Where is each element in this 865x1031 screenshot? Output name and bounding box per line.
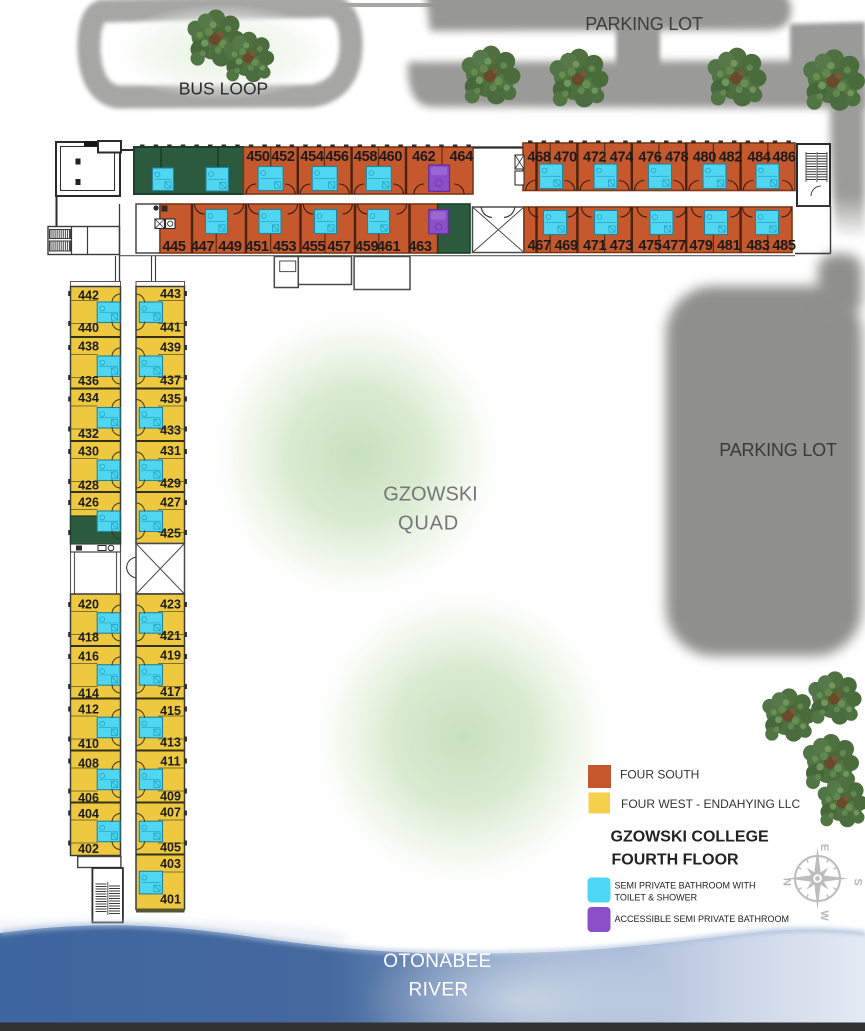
svg-text:RIVER: RIVER: [408, 980, 468, 1001]
svg-text:427: 427: [160, 496, 181, 510]
svg-text:476: 476: [638, 150, 662, 166]
svg-text:479: 479: [689, 238, 713, 254]
svg-text:463: 463: [408, 239, 432, 255]
svg-text:472: 472: [583, 150, 607, 166]
svg-text:456: 456: [325, 149, 349, 165]
svg-text:SEMI PRIVATE BATHROOM WITH: SEMI PRIVATE BATHROOM WITH: [615, 881, 756, 891]
svg-text:421: 421: [160, 629, 181, 643]
svg-text:FOURTH FLOOR: FOURTH FLOOR: [612, 852, 740, 869]
svg-text:445: 445: [162, 239, 186, 255]
svg-text:449: 449: [218, 239, 242, 255]
svg-text:474: 474: [610, 150, 634, 166]
svg-text:406: 406: [78, 791, 99, 805]
svg-text:471: 471: [583, 238, 607, 254]
svg-text:434: 434: [78, 391, 99, 405]
svg-text:431: 431: [160, 444, 181, 458]
svg-text:484: 484: [747, 150, 771, 166]
svg-text:482: 482: [719, 150, 743, 166]
svg-text:451: 451: [245, 239, 269, 255]
svg-text:411: 411: [160, 755, 180, 769]
svg-text:TOILET & SHOWER: TOILET & SHOWER: [615, 893, 698, 903]
svg-text:413: 413: [160, 736, 181, 750]
svg-text:459: 459: [355, 239, 379, 255]
svg-text:415: 415: [160, 704, 181, 718]
svg-text:483: 483: [746, 238, 770, 254]
svg-text:473: 473: [610, 238, 634, 254]
svg-text:458: 458: [354, 149, 378, 165]
svg-text:PARKING LOT: PARKING LOT: [585, 14, 703, 34]
svg-text:462: 462: [412, 149, 436, 165]
svg-text:429: 429: [160, 477, 181, 491]
svg-text:N: N: [781, 878, 793, 886]
svg-text:433: 433: [160, 424, 181, 438]
svg-text:417: 417: [160, 685, 181, 699]
svg-text:468: 468: [527, 150, 551, 166]
svg-text:426: 426: [78, 496, 99, 510]
svg-text:486: 486: [772, 150, 796, 166]
svg-text:437: 437: [160, 374, 181, 388]
svg-text:441: 441: [160, 321, 181, 335]
svg-text:405: 405: [160, 841, 181, 855]
svg-text:BUS LOOP: BUS LOOP: [179, 79, 268, 99]
svg-text:S: S: [852, 878, 864, 885]
svg-text:469: 469: [554, 238, 578, 254]
svg-text:407: 407: [160, 806, 181, 820]
svg-text:440: 440: [78, 321, 99, 335]
svg-text:404: 404: [78, 807, 99, 821]
svg-text:460: 460: [379, 149, 403, 165]
svg-text:425: 425: [160, 527, 181, 541]
svg-text:457: 457: [327, 239, 351, 255]
svg-text:464: 464: [450, 149, 474, 165]
svg-text:403: 403: [160, 857, 181, 871]
svg-text:455: 455: [302, 239, 326, 255]
svg-text:OTONABEE: OTONABEE: [383, 951, 491, 972]
svg-text:481: 481: [717, 238, 741, 254]
svg-text:416: 416: [78, 650, 99, 664]
svg-text:428: 428: [78, 479, 99, 493]
svg-text:419: 419: [160, 649, 181, 663]
svg-text:475: 475: [638, 238, 662, 254]
svg-text:430: 430: [78, 445, 99, 459]
svg-text:409: 409: [160, 790, 181, 804]
svg-text:450: 450: [246, 149, 270, 165]
svg-text:477: 477: [663, 238, 687, 254]
svg-text:GZOWSKI: GZOWSKI: [383, 484, 477, 506]
svg-text:438: 438: [78, 340, 99, 354]
svg-text:ACCESSIBLE SEMI PRIVATE BATHRO: ACCESSIBLE SEMI PRIVATE BATHROOM: [615, 914, 790, 924]
svg-text:408: 408: [78, 757, 99, 771]
svg-text:401: 401: [160, 893, 181, 907]
svg-text:FOUR SOUTH: FOUR SOUTH: [620, 768, 699, 782]
svg-text:W: W: [818, 910, 830, 921]
svg-text:467: 467: [528, 238, 552, 254]
svg-text:414: 414: [78, 687, 99, 701]
svg-text:470: 470: [554, 150, 578, 166]
svg-text:478: 478: [665, 150, 689, 166]
svg-text:436: 436: [78, 374, 99, 388]
svg-text:FOUR WEST - ENDAHYING LLC: FOUR WEST - ENDAHYING LLC: [621, 797, 800, 811]
svg-text:452: 452: [271, 149, 295, 165]
svg-text:QUAD: QUAD: [398, 513, 459, 535]
svg-text:PARKING LOT: PARKING LOT: [719, 440, 837, 460]
svg-text:418: 418: [78, 631, 99, 645]
svg-text:432: 432: [78, 427, 99, 441]
svg-text:420: 420: [78, 598, 99, 612]
svg-text:412: 412: [78, 703, 99, 717]
svg-text:447: 447: [191, 239, 215, 255]
svg-text:GZOWSKI COLLEGE: GZOWSKI COLLEGE: [611, 829, 770, 846]
svg-text:402: 402: [78, 842, 99, 856]
svg-text:442: 442: [78, 289, 99, 303]
svg-text:453: 453: [273, 239, 297, 255]
svg-text:443: 443: [160, 287, 181, 301]
svg-text:435: 435: [160, 392, 181, 406]
svg-text:454: 454: [300, 149, 324, 165]
svg-text:480: 480: [693, 150, 717, 166]
svg-text:439: 439: [160, 341, 181, 355]
svg-text:423: 423: [160, 598, 181, 612]
svg-text:410: 410: [78, 737, 99, 751]
svg-text:E: E: [818, 844, 830, 851]
svg-text:485: 485: [772, 238, 796, 254]
svg-text:461: 461: [377, 239, 401, 255]
